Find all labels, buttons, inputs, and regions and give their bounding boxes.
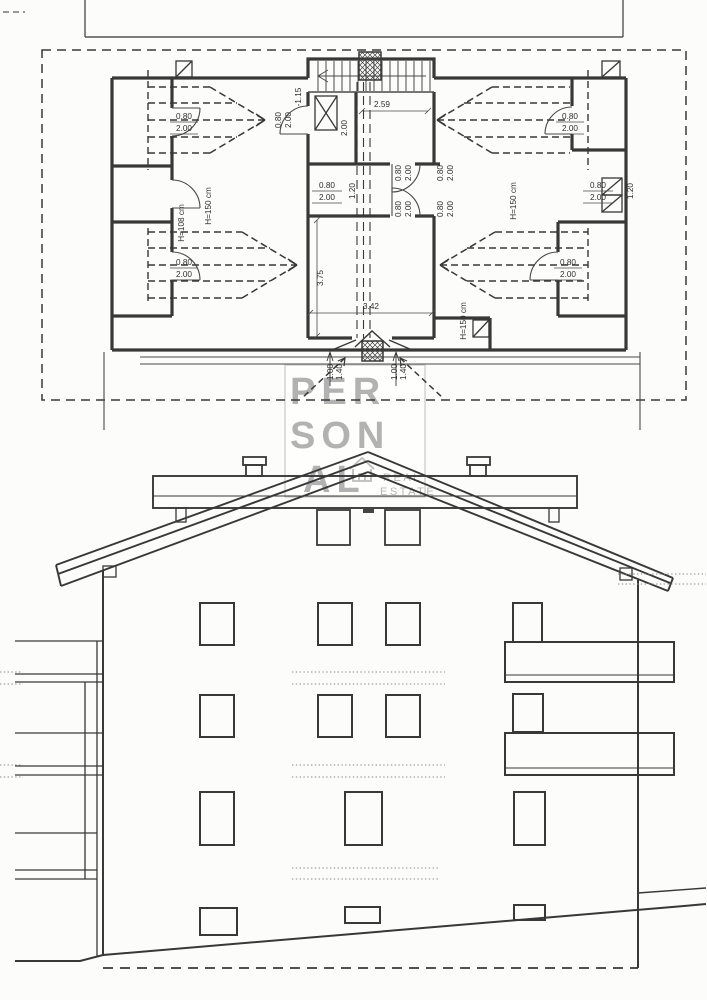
dimension-label: 2.00 [284,112,293,128]
dimension-label: 1.00 [326,364,335,380]
building-elevation [0,452,706,968]
dimension-label: 2.00 [446,201,455,217]
brand-text: REAL [383,472,422,484]
watermark-text: SON [290,415,390,457]
window [385,510,420,545]
window [318,695,352,737]
dimension-label: 1.40 [335,364,344,380]
roof-post [549,508,559,522]
flue-projection-lines [357,82,370,338]
scanned-drawing-sheet: PER SON AL REAL ESTATE [0,0,707,1000]
sheet-frame [3,0,623,37]
balcony [505,733,674,775]
architectural-drawing: PER SON AL REAL ESTATE [0,0,707,1000]
dimension-label: 2.00 [590,193,606,202]
basement-window [345,907,380,923]
chimney-hatch [362,341,383,361]
dimension-label: 1.20 [348,183,357,199]
dimension-lines [170,108,613,339]
roof [56,452,673,591]
dimension-label: 1.40 [399,364,408,380]
terrain-line [638,888,706,893]
dimension-label: 0.80 [319,181,335,190]
dimension-label: 0.80 [436,165,445,181]
ground-line [15,904,706,961]
window [386,603,420,645]
dimension-label: 0.80 [560,258,576,267]
basement-window [200,908,237,935]
dimension-label: 0.80 [176,258,192,267]
dimension-label: 0.80 [436,201,445,217]
dimension-label: 2.00 [562,124,578,133]
window [345,792,382,845]
dimension-label: 3.75 [316,270,325,286]
dimension-label: 2.00 [560,270,576,279]
window [514,792,545,845]
dimension-label: 0.80 [590,181,606,190]
window [513,603,542,642]
dimension-label: 2.00 [404,165,413,181]
knee-wall-lines [148,70,588,302]
knee-height-label: H=150 cm [204,187,213,225]
window [200,792,234,845]
window [513,694,543,732]
dimension-label: 2.00 [319,193,335,202]
dimension-label: 2.00 [446,165,455,181]
dimension-label: 0.80 [176,112,192,121]
balconies [505,642,674,775]
watermark: PER SON AL REAL ESTATE [285,365,436,501]
window [318,603,352,645]
dimension-label: 0.80 [394,165,403,181]
knee-height-label: H=150 cm [459,302,468,340]
dimension-label: 0.80 [274,112,283,128]
window [200,603,234,645]
dimension-label: 2.59 [374,100,390,109]
knee-height-label: H=150 cm [509,182,518,220]
chimney-hatch [359,52,381,80]
dimension-label: 2.00 [176,124,192,133]
windows [200,603,545,935]
dimension-label: 1.00 [390,364,399,380]
dimension-label: 1.20 [626,183,635,199]
balcony [505,642,674,682]
dimension-label: 2.00 [404,201,413,217]
dimension-label: -1.15 [294,87,303,106]
ridge-vent [363,508,374,513]
roof-slope-arrows [148,87,588,298]
dimension-label: 0.80 [394,201,403,217]
window [317,510,350,545]
knee-height-label: H=108 cm [177,204,186,242]
window [386,695,420,737]
window [200,695,234,737]
dimension-label: 0.80 [562,112,578,121]
dimension-label: 2.00 [176,270,192,279]
dimension-label: 3.42 [363,302,379,311]
dimension-label: 2.00 [340,120,349,136]
left-annex [15,641,103,879]
